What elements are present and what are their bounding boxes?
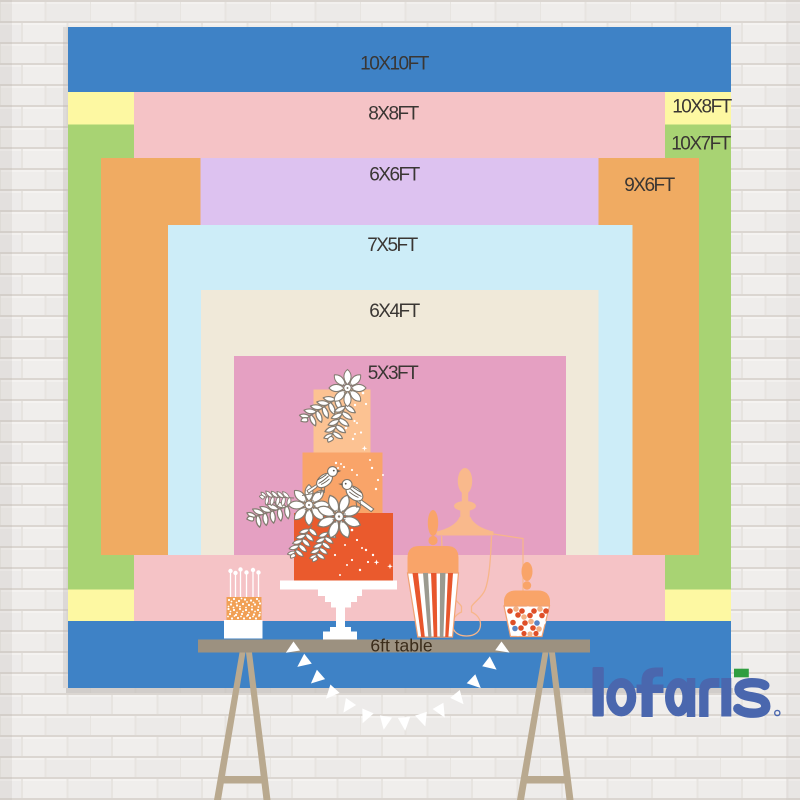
svg-text:6X4FT: 6X4FT [369,301,420,322]
svg-text:6ft table: 6ft table [370,636,432,656]
svg-text:9X6FT: 9X6FT [624,175,675,196]
svg-text:10X7FT: 10X7FT [671,134,731,155]
svg-text:5X3FT: 5X3FT [368,363,419,384]
svg-text:10X10FT: 10X10FT [360,54,430,75]
svg-text:7X5FT: 7X5FT [367,235,418,256]
svg-text:8X8FT: 8X8FT [368,104,419,125]
svg-text:6X6FT: 6X6FT [369,165,420,186]
svg-text:10X8FT: 10X8FT [672,97,732,118]
